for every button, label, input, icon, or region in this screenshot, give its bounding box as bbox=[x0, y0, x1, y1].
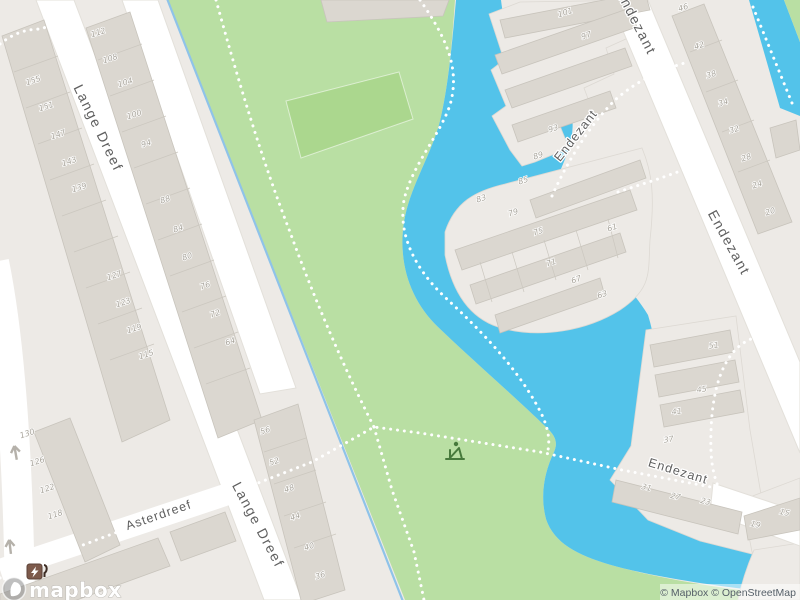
attribution-text[interactable]: © Mapbox © OpenStreetMap bbox=[660, 587, 796, 599]
map-canvas[interactable]: Lange Dreef Lange Dreef Asterdreef Endez… bbox=[0, 0, 800, 600]
map-viewport[interactable]: Lange Dreef Lange Dreef Asterdreef Endez… bbox=[0, 0, 800, 600]
house-number: 41 bbox=[671, 406, 682, 416]
mapbox-logo[interactable]: mapbox bbox=[3, 578, 122, 600]
house-number: 45 bbox=[696, 384, 707, 394]
attribution-bar: © Mapbox © OpenStreetMap bbox=[660, 584, 800, 600]
house-number: 51 bbox=[708, 340, 719, 350]
mapbox-wordmark: mapbox bbox=[29, 578, 122, 600]
